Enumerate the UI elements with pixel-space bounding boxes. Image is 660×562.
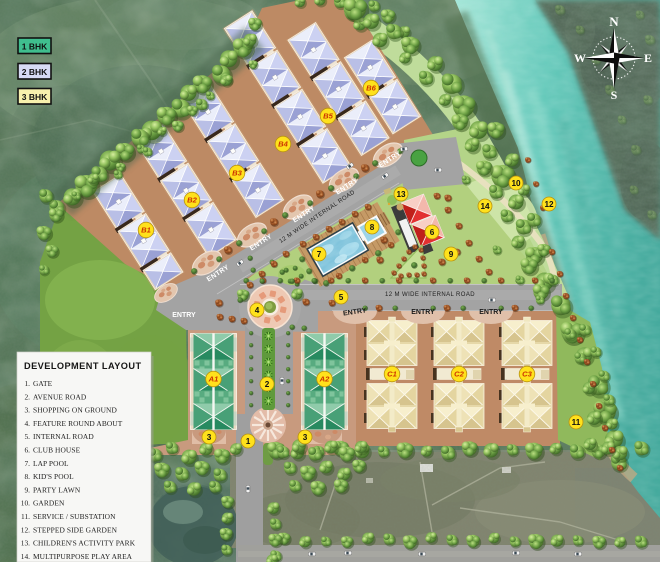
- svg-text:E: E: [644, 51, 652, 65]
- svg-text:A2: A2: [319, 375, 330, 384]
- svg-text:C3: C3: [522, 370, 532, 379]
- svg-text:13: 13: [396, 190, 406, 199]
- svg-text:A1: A1: [208, 375, 219, 384]
- svg-text:14.: 14.: [21, 552, 30, 561]
- svg-text:FEATURE ROUND ABOUT: FEATURE ROUND ABOUT: [33, 419, 123, 428]
- svg-text:12.: 12.: [21, 525, 30, 534]
- svg-text:14: 14: [480, 202, 490, 211]
- svg-text:7.: 7.: [24, 459, 30, 468]
- svg-text:1: 1: [246, 437, 251, 446]
- svg-text:C2: C2: [454, 370, 464, 379]
- svg-text:7: 7: [317, 250, 322, 259]
- svg-text:4.: 4.: [24, 419, 30, 428]
- svg-text:ENTRY: ENTRY: [411, 309, 435, 316]
- svg-text:B2: B2: [187, 196, 197, 205]
- svg-text:STEPPED SIDE GARDEN: STEPPED SIDE GARDEN: [33, 525, 118, 534]
- svg-text:9: 9: [449, 250, 454, 259]
- svg-text:N: N: [609, 14, 619, 29]
- svg-text:3: 3: [303, 433, 308, 442]
- svg-text:B5: B5: [323, 112, 333, 121]
- svg-text:C1: C1: [387, 370, 397, 379]
- svg-text:SHOPPING ON GROUND: SHOPPING ON GROUND: [33, 406, 117, 415]
- svg-text:INTERNAL ROAD: INTERNAL ROAD: [33, 432, 94, 441]
- svg-text:8.: 8.: [24, 472, 30, 481]
- svg-text:11: 11: [572, 418, 581, 427]
- svg-text:3: 3: [207, 433, 212, 442]
- svg-text:9.: 9.: [24, 485, 30, 494]
- svg-text:3.: 3.: [24, 406, 30, 415]
- svg-text:2 BHK: 2 BHK: [22, 67, 48, 77]
- svg-text:CHILDREN'S ACTIVITY PARK: CHILDREN'S ACTIVITY PARK: [33, 539, 136, 548]
- svg-text:DEVELOPMENT LAYOUT: DEVELOPMENT LAYOUT: [24, 361, 142, 371]
- svg-text:8: 8: [370, 223, 375, 232]
- svg-text:MULTIPURPOSE PLAY AREA: MULTIPURPOSE PLAY AREA: [33, 552, 133, 561]
- svg-text:3 BHK: 3 BHK: [22, 92, 48, 102]
- svg-text:KID'S POOL: KID'S POOL: [33, 472, 74, 481]
- svg-text:SERVICE / SUBSTATION: SERVICE / SUBSTATION: [33, 512, 116, 521]
- svg-text:B6: B6: [366, 84, 376, 93]
- svg-text:5.: 5.: [24, 432, 30, 441]
- svg-text:ENTRY: ENTRY: [172, 312, 196, 319]
- svg-text:6.: 6.: [24, 446, 30, 455]
- svg-text:11.: 11.: [21, 512, 30, 521]
- svg-text:PARTY LAWN: PARTY LAWN: [33, 485, 81, 494]
- svg-text:12 M WIDE INTERNAL ROAD: 12 M WIDE INTERNAL ROAD: [385, 292, 475, 298]
- svg-text:W: W: [574, 51, 586, 65]
- svg-text:GATE: GATE: [33, 379, 53, 388]
- svg-text:6: 6: [430, 228, 435, 237]
- svg-text:B1: B1: [141, 226, 151, 235]
- svg-text:12: 12: [544, 200, 554, 209]
- svg-text:5: 5: [339, 293, 344, 302]
- svg-text:B3: B3: [232, 169, 242, 178]
- svg-text:10.: 10.: [21, 499, 30, 508]
- svg-text:ENTRY: ENTRY: [479, 309, 503, 316]
- svg-text:2: 2: [265, 380, 270, 389]
- svg-text:13.: 13.: [21, 539, 30, 548]
- svg-text:S: S: [611, 88, 618, 102]
- svg-text:4: 4: [255, 306, 260, 315]
- svg-text:2.: 2.: [24, 392, 30, 401]
- svg-text:B4: B4: [278, 140, 288, 149]
- svg-text:GARDEN: GARDEN: [33, 499, 65, 508]
- svg-text:AVENUE ROAD: AVENUE ROAD: [33, 392, 87, 401]
- svg-text:1.: 1.: [24, 379, 30, 388]
- svg-text:CLUB HOUSE: CLUB HOUSE: [33, 446, 81, 455]
- svg-text:10: 10: [511, 179, 521, 188]
- svg-text:1 BHK: 1 BHK: [22, 42, 48, 52]
- svg-text:LAP POOL: LAP POOL: [33, 459, 69, 468]
